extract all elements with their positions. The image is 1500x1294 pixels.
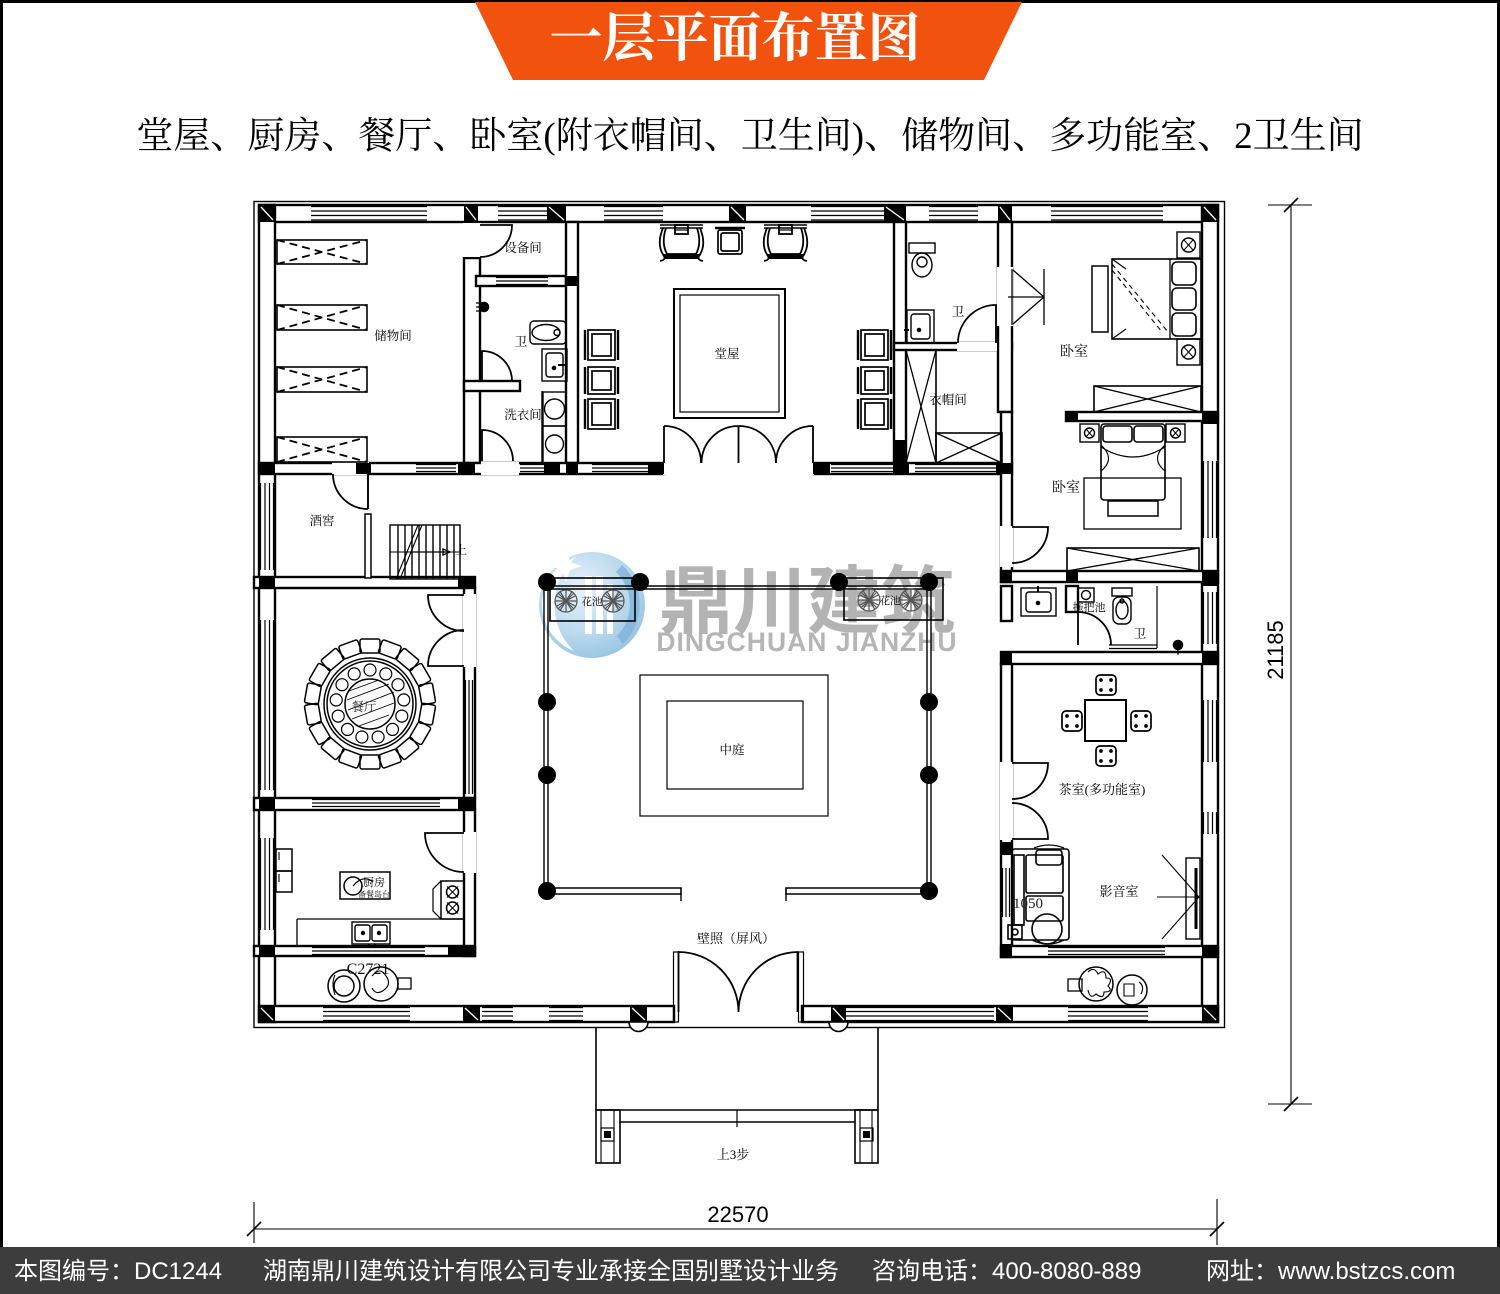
svg-text:壁照（屏风）: 壁照（屏风） <box>697 931 775 946</box>
svg-text:卧室: 卧室 <box>1060 343 1088 360</box>
svg-text:洗衣间: 洗衣间 <box>504 407 542 422</box>
svg-text:卧室: 卧室 <box>1052 479 1080 496</box>
svg-text:储物间: 储物间 <box>374 328 412 343</box>
svg-text:湖南鼎川建筑设计有限公司专业承接全国别墅设计业务: 湖南鼎川建筑设计有限公司专业承接全国别墅设计业务 <box>263 1258 839 1285</box>
svg-text:衣帽间: 衣帽间 <box>929 392 967 407</box>
svg-text:卫: 卫 <box>952 305 965 319</box>
svg-text:堂屋、厨房、餐厅、卧室(附衣帽间、卫生间)、储物间、多功能室: 堂屋、厨房、餐厅、卧室(附衣帽间、卫生间)、储物间、多功能室、2卫生间 <box>136 115 1363 157</box>
svg-text:备餐岛台: 备餐岛台 <box>358 889 390 899</box>
svg-text:餐厅: 餐厅 <box>351 699 376 714</box>
svg-text:上: 上 <box>455 542 467 557</box>
svg-text:厨房: 厨房 <box>363 875 385 889</box>
svg-text:上3步: 上3步 <box>717 1147 750 1162</box>
svg-text:设备间: 设备间 <box>504 240 542 255</box>
svg-text:堂屋: 堂屋 <box>714 346 739 361</box>
svg-text:花池: 花池 <box>582 595 603 608</box>
svg-text:22570: 22570 <box>707 1202 768 1227</box>
svg-text:酒窖: 酒窖 <box>309 513 334 528</box>
svg-text:拖把池: 拖把池 <box>1073 600 1106 614</box>
svg-text:本图编号：DC1244: 本图编号：DC1244 <box>14 1258 222 1285</box>
svg-text:花池: 花池 <box>880 594 901 607</box>
svg-text:21185: 21185 <box>1263 620 1288 680</box>
svg-text:C2721: C2721 <box>347 961 390 978</box>
svg-text:卫: 卫 <box>515 335 528 349</box>
svg-text:一层平面布置图: 一层平面布置图 <box>550 9 921 68</box>
svg-text:1050: 1050 <box>1013 896 1043 912</box>
svg-text:网址：www.bstzcs.com: 网址：www.bstzcs.com <box>1206 1258 1455 1285</box>
svg-text:DINGCHUAN JIANZHU: DINGCHUAN JIANZHU <box>656 627 957 657</box>
svg-text:茶室(多功能室): 茶室(多功能室) <box>1059 782 1146 797</box>
svg-text:中庭: 中庭 <box>719 742 745 757</box>
svg-text:咨询电话：400-8080-889: 咨询电话：400-8080-889 <box>872 1258 1141 1285</box>
svg-text:卫: 卫 <box>1134 627 1147 641</box>
svg-text:影音室: 影音室 <box>1099 884 1138 899</box>
